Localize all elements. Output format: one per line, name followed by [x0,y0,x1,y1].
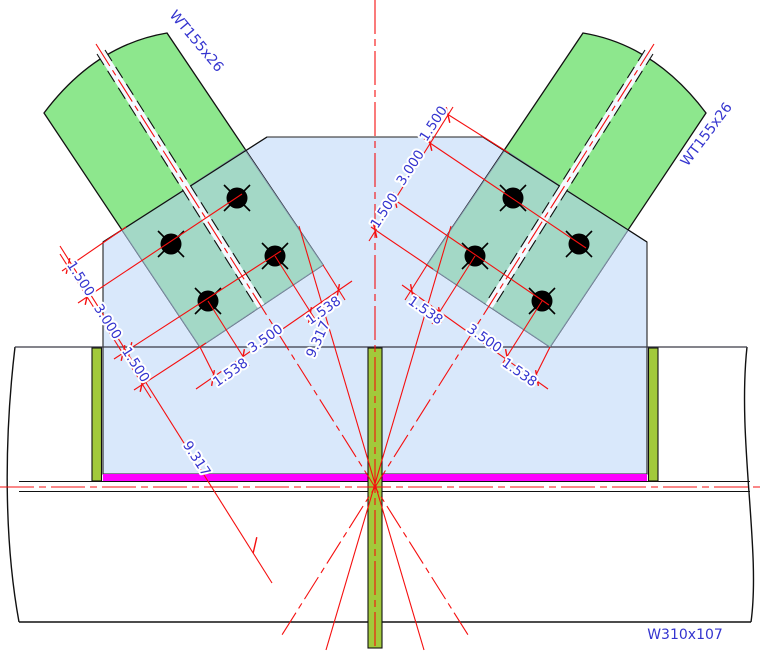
dimension-label: 1.500 [63,258,97,299]
beam-break-line-left [7,347,19,622]
stiffener-left [92,348,102,481]
bolt [224,185,250,211]
bolt [566,231,592,257]
dim-tick [253,537,257,553]
stiffener-right [649,348,659,481]
member-size-label: W310x107 [647,627,723,643]
beam-break-line-right [745,347,754,622]
cad-viewport[interactable]: 1.5003.0001.5001.5003.0001.5001.5383.500… [0,0,764,651]
cad-drawing-canvas[interactable]: 1.5003.0001.5001.5003.0001.5001.5383.500… [0,0,764,651]
bolt [500,185,526,211]
